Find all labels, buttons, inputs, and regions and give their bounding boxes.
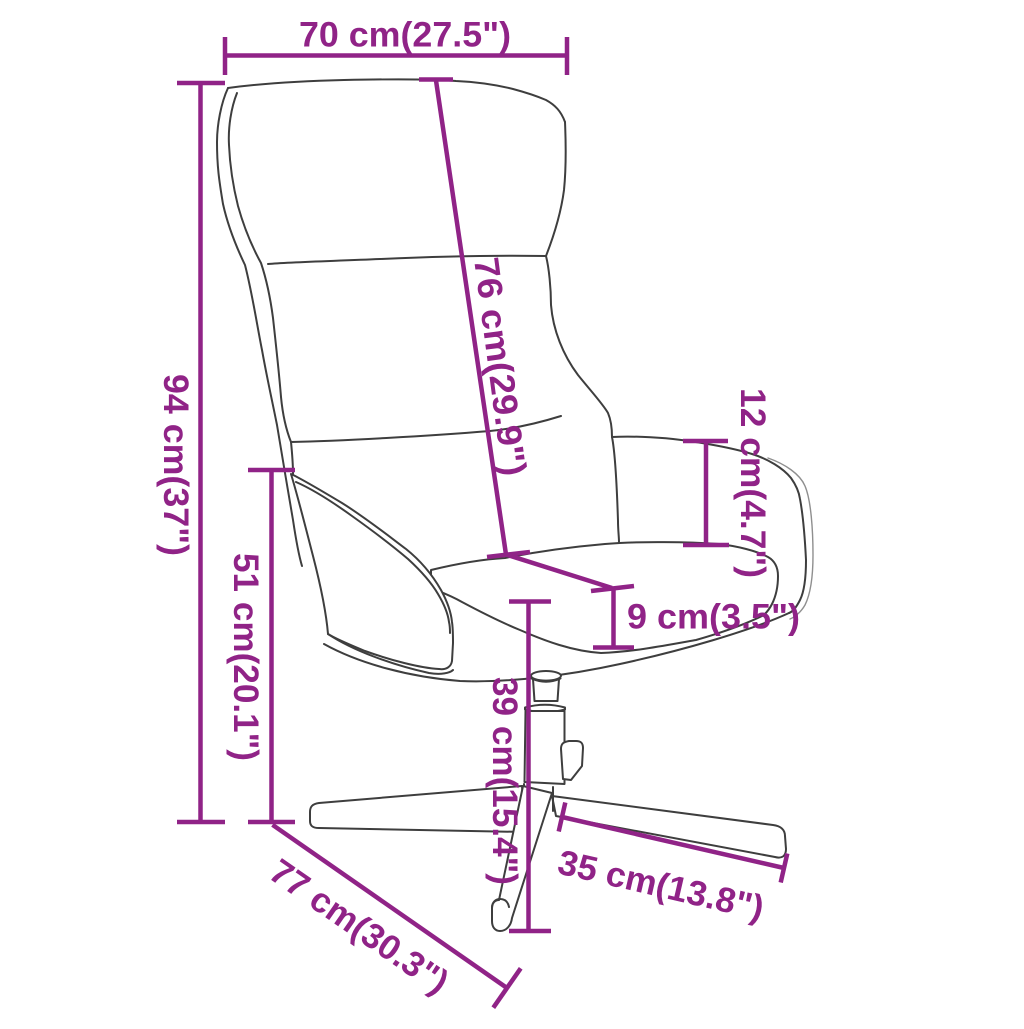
svg-text:51 cm(20.1"): 51 cm(20.1") [226,553,265,761]
svg-text:39 cm(15.4"): 39 cm(15.4") [485,677,524,885]
svg-text:70 cm(27.5"): 70 cm(27.5") [299,16,511,55]
svg-text:12 cm(4.7"): 12 cm(4.7") [733,388,772,578]
svg-text:94 cm(37"): 94 cm(37") [156,374,195,556]
svg-text:9 cm(3.5"): 9 cm(3.5") [627,598,800,637]
